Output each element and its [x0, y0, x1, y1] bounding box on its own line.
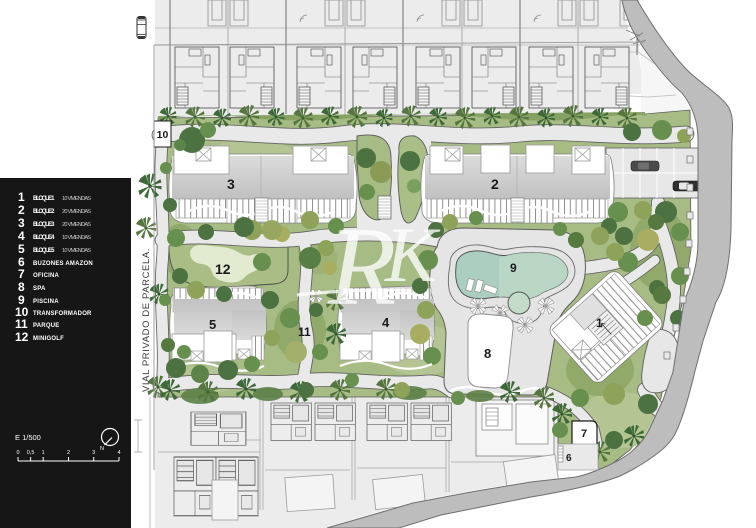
svg-text:E 1/500: E 1/500 [15, 433, 41, 442]
svg-text:N: N [100, 446, 104, 452]
svg-text:7: 7 [581, 428, 587, 440]
svg-text:1: 1 [596, 316, 603, 330]
svg-text:3: 3 [18, 216, 25, 230]
svg-text:20 VIVIENDAS: 20 VIVIENDAS [62, 222, 91, 228]
svg-text:BLOQUE 1: BLOQUE 1 [33, 196, 55, 202]
svg-text:11: 11 [15, 317, 28, 331]
svg-text:10 VIVIENDAS: 10 VIVIENDAS [62, 248, 91, 254]
svg-text:1: 1 [42, 450, 45, 456]
svg-text:12: 12 [215, 261, 231, 277]
svg-text:8: 8 [18, 280, 25, 294]
svg-text:10: 10 [157, 129, 169, 141]
svg-text:1: 1 [18, 190, 25, 204]
svg-text:TRANSFORMADOR: TRANSFORMADOR [33, 311, 92, 317]
svg-text:10 VIVIENDAS: 10 VIVIENDAS [62, 235, 91, 241]
svg-text:4: 4 [117, 450, 120, 456]
svg-text:OFICINA: OFICINA [33, 273, 60, 279]
svg-text:2: 2 [67, 450, 70, 456]
svg-text:MINIGOLF: MINIGOLF [33, 336, 64, 342]
svg-text:4: 4 [18, 229, 25, 243]
svg-text:20 VIVIENDAS: 20 VIVIENDAS [62, 209, 91, 215]
svg-text:6: 6 [566, 453, 572, 464]
svg-text:3: 3 [92, 450, 95, 456]
svg-text:2: 2 [491, 176, 499, 192]
svg-text:K: K [384, 211, 441, 298]
svg-text:7: 7 [18, 267, 25, 281]
svg-text:BLOQUE 5: BLOQUE 5 [33, 248, 55, 254]
svg-text:5: 5 [18, 242, 25, 256]
svg-text:2: 2 [18, 203, 25, 217]
svg-text:10 VIVIENDAS: 10 VIVIENDAS [62, 196, 91, 202]
svg-text:BUZONES AMAZON: BUZONES AMAZON [33, 261, 93, 267]
svg-text:VIAL PRIVADO DE PARCELA.: VIAL PRIVADO DE PARCELA. [141, 248, 152, 392]
svg-text:5: 5 [209, 317, 216, 332]
svg-text:0,5: 0,5 [27, 450, 35, 456]
svg-text:BLOQUE 4: BLOQUE 4 [33, 235, 55, 241]
svg-text:3: 3 [227, 176, 235, 192]
svg-text:8: 8 [484, 346, 491, 361]
svg-text:PARQUE: PARQUE [33, 323, 59, 329]
svg-text:BLOQUE 2: BLOQUE 2 [33, 209, 55, 215]
svg-text:PISCINA: PISCINA [33, 299, 59, 305]
svg-text:12: 12 [15, 330, 29, 344]
svg-text:SPA: SPA [33, 286, 46, 292]
svg-text:BLOQUE 3: BLOQUE 3 [33, 222, 55, 228]
svg-text:0: 0 [16, 450, 19, 456]
svg-text:11: 11 [298, 325, 311, 339]
svg-text:9: 9 [510, 261, 517, 275]
